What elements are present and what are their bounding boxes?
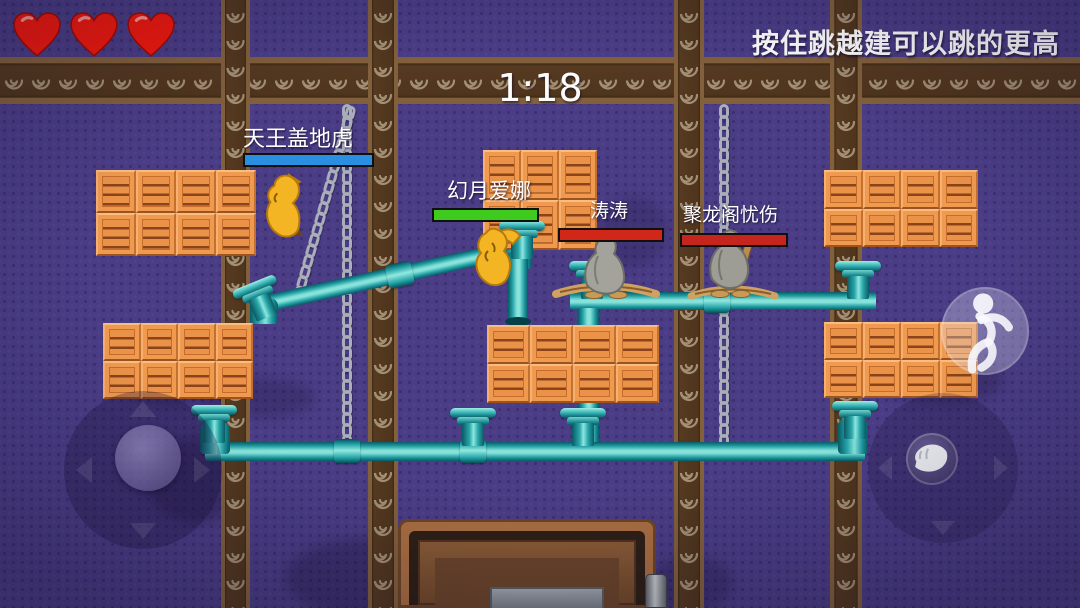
health-fill: [245, 155, 372, 165]
wood-pillar: [368, 0, 398, 608]
heart-icon: [126, 12, 176, 58]
arrow-down-icon: [130, 523, 156, 539]
crate: [487, 364, 530, 403]
hand-icon: [906, 433, 958, 485]
pipe-coupling: [334, 439, 360, 463]
arrow-right-icon: [994, 456, 1008, 480]
lives-hearts: [12, 12, 176, 58]
crate: [178, 361, 216, 399]
crate: [136, 213, 176, 256]
jump-button[interactable]: [941, 287, 1029, 375]
crate: [573, 364, 616, 403]
player-sprite-yellow-2: [468, 221, 524, 291]
arrow-up-icon: [130, 401, 156, 417]
crate: [901, 322, 940, 360]
spiral-ornament-row: [368, 0, 398, 608]
crate: [487, 325, 530, 364]
arrow-left-icon: [878, 456, 892, 480]
crate: [901, 209, 940, 248]
health-bar: [432, 208, 539, 222]
player-name: 幻月爱娜: [447, 175, 531, 205]
crate: [136, 170, 176, 213]
crate: [863, 322, 902, 360]
furnace: [398, 519, 656, 608]
crate: [940, 209, 979, 248]
arrow-left-icon: [76, 457, 92, 483]
crate: [824, 360, 863, 398]
health-fill: [560, 230, 662, 240]
crate: [824, 322, 863, 360]
match-timer: 1:18: [460, 66, 620, 110]
pipe-coupling: [384, 260, 415, 289]
crate: [530, 325, 573, 364]
health-bar: [680, 233, 788, 247]
crate: [824, 170, 863, 209]
crate: [141, 323, 179, 361]
heart-icon: [12, 12, 62, 58]
crate: [573, 325, 616, 364]
crate: [530, 364, 573, 403]
arrow-down-icon: [931, 521, 955, 535]
crate: [901, 170, 940, 209]
furnace-hatch: [490, 587, 604, 608]
crate: [176, 213, 216, 256]
crate: [96, 213, 136, 256]
metal-cylinder: [645, 574, 667, 608]
pipe-cap: [450, 408, 496, 446]
crate: [863, 360, 902, 398]
crate: [863, 170, 902, 209]
crate: [176, 170, 216, 213]
pipe-cap: [835, 261, 881, 299]
crate: [216, 361, 254, 399]
crate: [216, 323, 254, 361]
grab-button[interactable]: [906, 433, 958, 485]
crate: [559, 150, 597, 200]
player-name: 天王盖地虎: [243, 121, 353, 153]
health-bar: [243, 153, 374, 167]
crate: [216, 213, 256, 256]
crate: [824, 209, 863, 248]
game-stage: 天王盖地虎 幻月爱娜 涛涛 聚龙阁忧伤 1:18 按住跳越建可以跳的更高: [0, 0, 1080, 608]
player-sprite-yellow-1: [258, 172, 316, 240]
heart-icon: [69, 12, 119, 58]
player-name: 聚龙阁忧伤: [683, 200, 778, 227]
pipe-cap: [560, 408, 606, 446]
player-name: 涛涛: [590, 196, 628, 223]
health-fill: [434, 210, 537, 220]
crate: [863, 209, 902, 248]
crate: [216, 170, 256, 213]
health-bar: [558, 228, 664, 242]
pipe-bottom: [205, 442, 865, 461]
hint-text: 按住跳越建可以跳的更高: [752, 22, 1060, 61]
pipe-cap: [832, 401, 878, 439]
jump-figure-icon: [941, 287, 1029, 375]
crate: [96, 170, 136, 213]
joystick-knob[interactable]: [115, 425, 181, 491]
crate: [103, 323, 141, 361]
crate: [901, 360, 940, 398]
crate: [616, 364, 659, 403]
arrow-right-icon: [194, 457, 210, 483]
player-sprite-gray-1: [568, 234, 642, 300]
health-fill: [682, 235, 786, 245]
crate: [616, 325, 659, 364]
crate: [940, 170, 979, 209]
crate: [178, 323, 216, 361]
